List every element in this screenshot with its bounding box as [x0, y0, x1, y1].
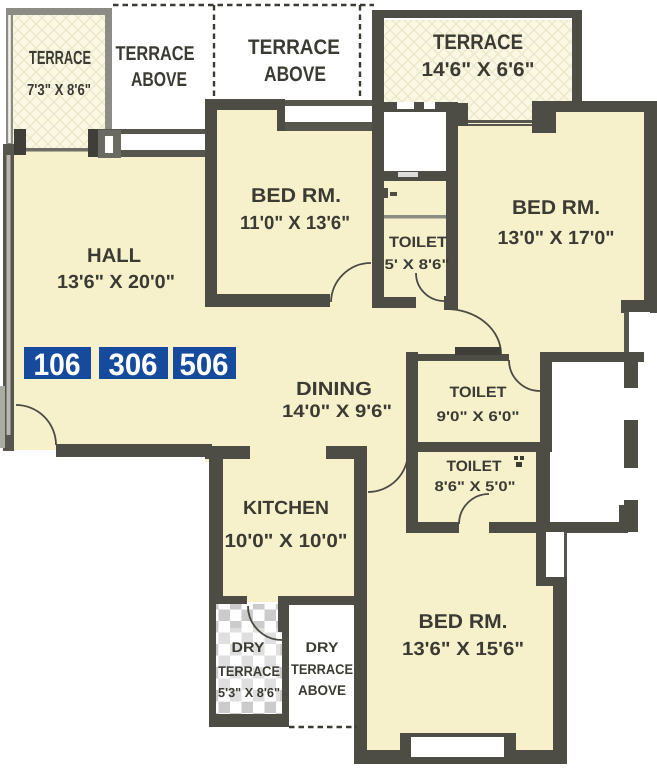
svg-text:5' X 8'6": 5' X 8'6": [385, 256, 450, 272]
svg-text:306: 306: [109, 347, 158, 382]
svg-text:TOILET: TOILET: [389, 234, 447, 251]
svg-text:ABOVE: ABOVE: [131, 69, 187, 91]
svg-text:BED RM.: BED RM.: [251, 185, 341, 207]
svg-text:8'6" X 5'0": 8'6" X 5'0": [435, 478, 516, 494]
svg-text:ABOVE: ABOVE: [264, 63, 326, 86]
svg-text:TOILET: TOILET: [450, 384, 507, 401]
svg-text:KITCHEN: KITCHEN: [243, 498, 329, 519]
svg-text:506: 506: [180, 347, 229, 382]
svg-text:DINING: DINING: [296, 379, 372, 400]
svg-text:TERRACE: TERRACE: [116, 43, 195, 65]
svg-text:BED RM.: BED RM.: [419, 611, 508, 633]
svg-text:DRY: DRY: [232, 639, 266, 655]
svg-text:ABOVE: ABOVE: [298, 682, 346, 698]
svg-text:TERRACE: TERRACE: [248, 36, 340, 59]
svg-text:TERRACE: TERRACE: [29, 48, 91, 69]
svg-text:9'0" X 6'0": 9'0" X 6'0": [437, 408, 520, 424]
svg-text:11'0" X 13'6": 11'0" X 13'6": [240, 213, 350, 234]
svg-text:BED RM.: BED RM.: [512, 197, 600, 219]
svg-text:14'6" X 6'6": 14'6" X 6'6": [422, 59, 535, 81]
svg-text:7'3" X 8'6": 7'3" X 8'6": [27, 82, 91, 99]
svg-text:13'0" X 17'0": 13'0" X 17'0": [498, 228, 615, 249]
svg-text:10'0" X 10'0": 10'0" X 10'0": [225, 531, 348, 552]
svg-text:106: 106: [34, 347, 81, 382]
svg-text:TERRACE: TERRACE: [433, 31, 523, 54]
svg-text:HALL: HALL: [87, 245, 141, 267]
svg-text:TERRACE: TERRACE: [218, 663, 280, 679]
svg-text:13'6" X 20'0": 13'6" X 20'0": [57, 272, 175, 293]
svg-text:14'0" X 9'6": 14'0" X 9'6": [282, 401, 392, 421]
svg-text:5'3" X 8'6": 5'3" X 8'6": [218, 685, 280, 700]
svg-text:13'6" X 15'6": 13'6" X 15'6": [402, 639, 524, 660]
svg-text:DRY: DRY: [306, 639, 340, 655]
svg-text:TERRACE: TERRACE: [291, 661, 353, 677]
svg-text:TOILET: TOILET: [447, 458, 502, 475]
